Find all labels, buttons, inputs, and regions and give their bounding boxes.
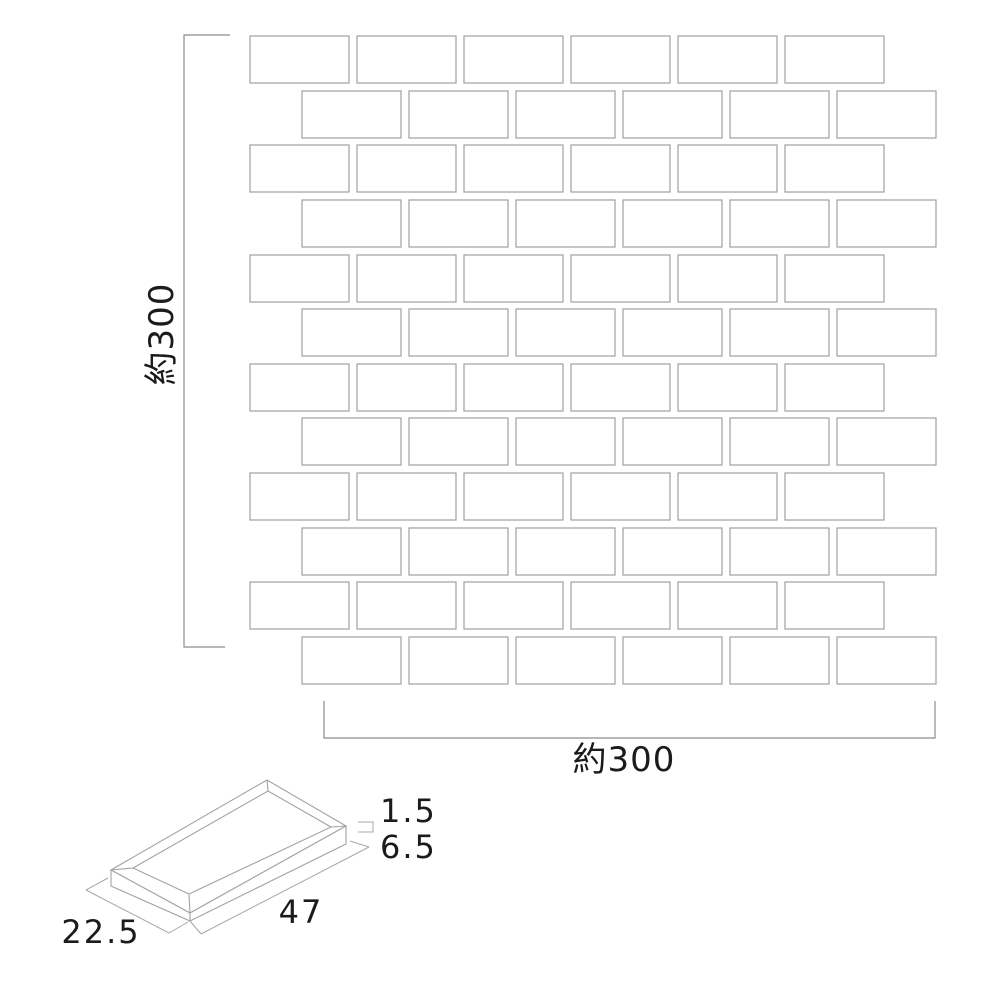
mosaic-tile — [785, 145, 884, 192]
mosaic-tile — [785, 255, 884, 302]
mosaic-tile — [357, 36, 456, 83]
mosaic-tile — [464, 145, 563, 192]
mosaic-tile — [623, 418, 722, 465]
tile-length-label: 47 — [279, 893, 324, 931]
mosaic-tile — [250, 36, 349, 83]
mosaic-tile — [678, 145, 777, 192]
mosaic-tile — [678, 473, 777, 520]
mosaic-tile — [409, 637, 508, 684]
mosaic-tile — [730, 91, 829, 138]
mosaic-tile — [250, 145, 349, 192]
mosaic-tile — [464, 364, 563, 411]
tile-edge-thickness-label: 1.5 — [380, 792, 437, 830]
mosaic-tile — [516, 528, 615, 575]
sheet-height-label: 約300 — [142, 283, 182, 386]
mosaic-tile — [302, 200, 401, 247]
mosaic-tile — [730, 418, 829, 465]
tile-dimension-drawing: 約300 約300 22.5 47 1.5 6.5 — [0, 0, 1000, 1000]
mosaic-tile — [837, 91, 936, 138]
mosaic-tile — [464, 473, 563, 520]
tile-width-label: 22.5 — [61, 913, 140, 951]
mosaic-tile — [250, 473, 349, 520]
mosaic-tile — [571, 582, 670, 629]
mosaic-tile — [357, 145, 456, 192]
mosaic-tile — [623, 309, 722, 356]
mosaic-tile — [516, 637, 615, 684]
length-extension-line-b — [350, 841, 369, 847]
tile-isometric-view — [86, 780, 373, 934]
mosaic-tile — [357, 364, 456, 411]
mosaic-tile — [409, 200, 508, 247]
width-extension-line-b — [169, 922, 188, 933]
sheet-height-dimension-line — [184, 35, 230, 647]
mosaic-tile — [623, 200, 722, 247]
mosaic-tile — [837, 528, 936, 575]
mosaic-tile — [678, 364, 777, 411]
mosaic-tile — [302, 637, 401, 684]
sheet-width-dimension-line — [324, 701, 935, 738]
mosaic-tile — [678, 36, 777, 83]
mosaic-tile — [250, 582, 349, 629]
mosaic-tile — [409, 91, 508, 138]
mosaic-tile — [516, 418, 615, 465]
drawing-svg: 約300 約300 22.5 47 1.5 6.5 — [0, 0, 1000, 1000]
mosaic-tile — [409, 309, 508, 356]
mosaic-tile — [571, 255, 670, 302]
mosaic-tile — [250, 255, 349, 302]
mosaic-tile — [785, 364, 884, 411]
mosaic-tile — [357, 473, 456, 520]
mosaic-tile — [302, 418, 401, 465]
mosaic-tile — [357, 582, 456, 629]
mosaic-tile — [623, 528, 722, 575]
mosaic-tile — [785, 36, 884, 83]
mosaic-tile — [464, 36, 563, 83]
mosaic-tile — [785, 473, 884, 520]
mosaic-tile — [571, 145, 670, 192]
mosaic-tile — [678, 255, 777, 302]
mosaic-tile — [516, 309, 615, 356]
mosaic-tile — [464, 255, 563, 302]
mosaic-tile — [571, 473, 670, 520]
tile-thickness-label: 6.5 — [380, 828, 437, 866]
sheet-width-label: 約300 — [573, 740, 676, 780]
mosaic-tile — [730, 200, 829, 247]
mosaic-tile — [516, 200, 615, 247]
mosaic-tile — [837, 200, 936, 247]
mosaic-tile — [837, 418, 936, 465]
mosaic-tile — [623, 91, 722, 138]
mosaic-tile — [730, 637, 829, 684]
mosaic-tile — [409, 418, 508, 465]
length-extension-line-a — [190, 921, 201, 934]
mosaic-tile — [464, 582, 563, 629]
mosaic-tile — [837, 637, 936, 684]
mosaic-tile — [302, 309, 401, 356]
edge-thickness-bracket — [358, 822, 373, 832]
mosaic-tile — [730, 528, 829, 575]
mosaic-tile — [623, 637, 722, 684]
tile-grid — [250, 36, 936, 684]
width-extension-line-a — [86, 878, 108, 890]
mosaic-tile — [516, 91, 615, 138]
mosaic-tile — [571, 364, 670, 411]
mosaic-tile — [357, 255, 456, 302]
mosaic-tile — [302, 528, 401, 575]
mosaic-tile — [302, 91, 401, 138]
mosaic-tile — [837, 309, 936, 356]
mosaic-tile — [409, 528, 508, 575]
mosaic-tile — [678, 582, 777, 629]
mosaic-tile — [785, 582, 884, 629]
mosaic-tile — [250, 364, 349, 411]
mosaic-tile — [571, 36, 670, 83]
mosaic-tile — [730, 309, 829, 356]
